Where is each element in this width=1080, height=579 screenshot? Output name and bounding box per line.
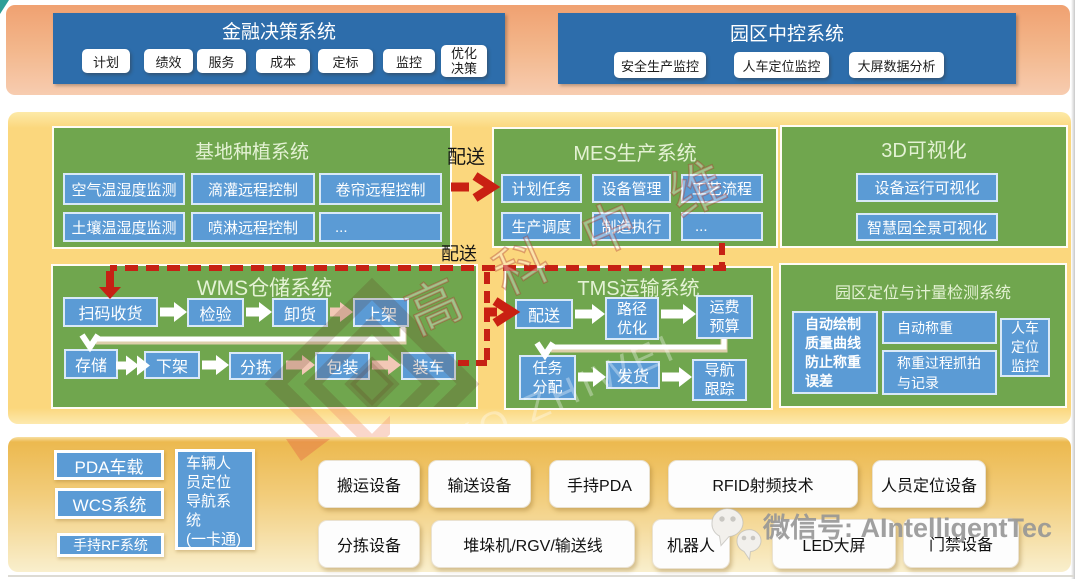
svg-text:微信号: AIntelligentTec: 微信号: AIntelligentTec — [762, 513, 1052, 543]
